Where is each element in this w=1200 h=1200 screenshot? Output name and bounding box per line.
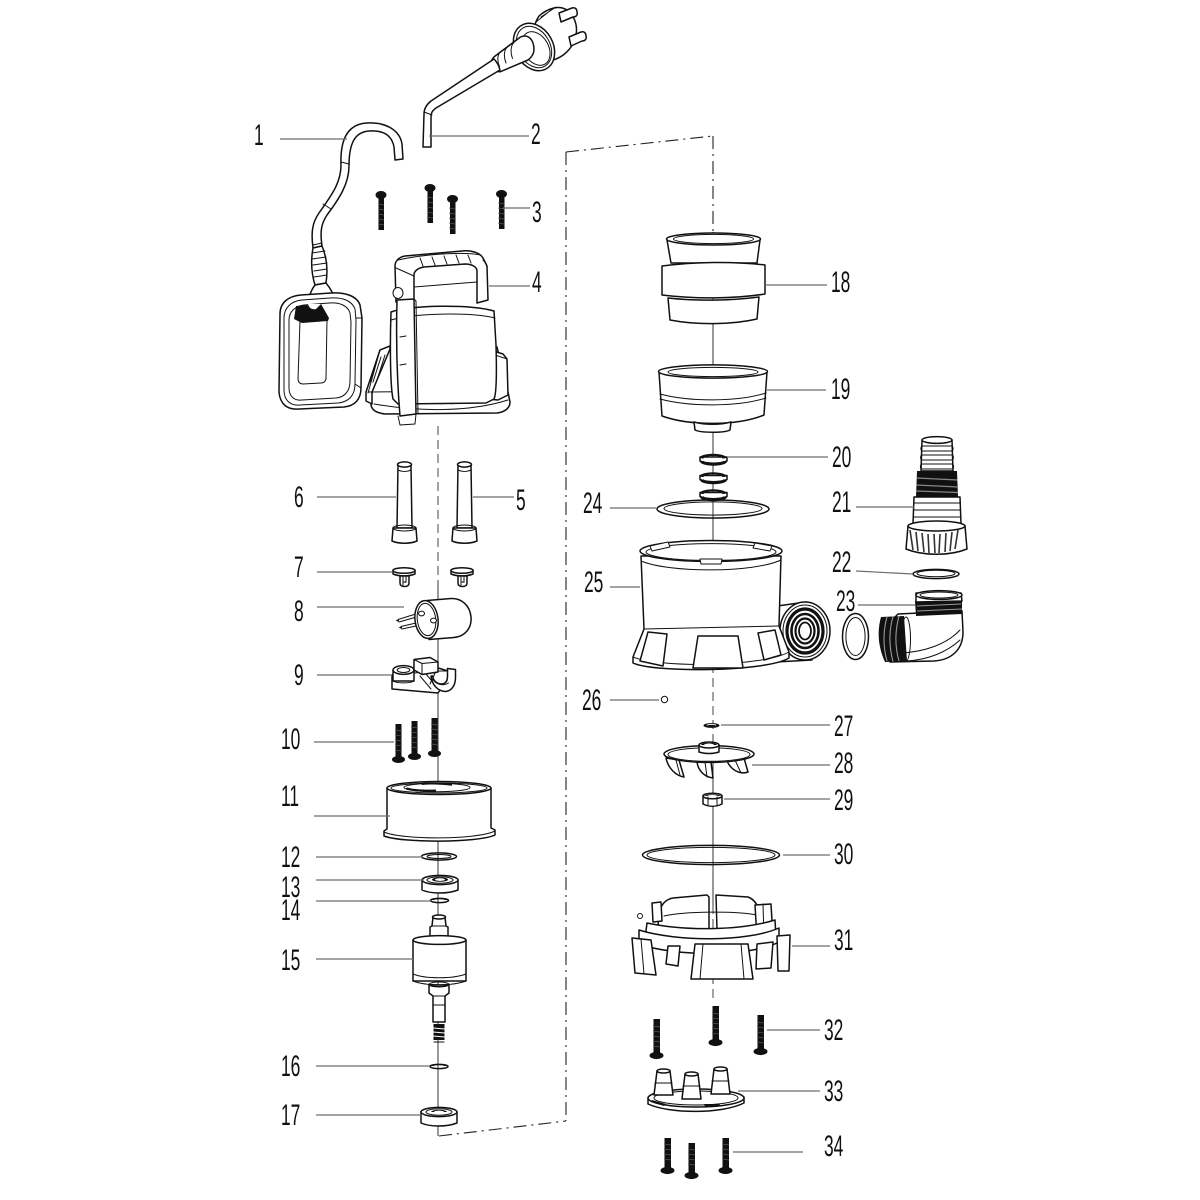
- svg-text:2: 2: [531, 118, 541, 151]
- svg-text:25: 25: [584, 566, 603, 599]
- svg-text:23: 23: [836, 585, 855, 618]
- svg-text:12: 12: [281, 841, 300, 874]
- svg-text:24: 24: [583, 487, 602, 520]
- svg-text:4: 4: [532, 266, 542, 299]
- svg-text:22: 22: [832, 546, 851, 579]
- svg-text:5: 5: [516, 484, 526, 517]
- svg-text:20: 20: [832, 441, 851, 474]
- svg-text:30: 30: [834, 838, 853, 871]
- svg-text:26: 26: [582, 684, 601, 717]
- svg-text:11: 11: [281, 780, 299, 813]
- svg-text:15: 15: [281, 944, 300, 977]
- svg-text:17: 17: [281, 1099, 300, 1132]
- svg-text:28: 28: [834, 747, 853, 780]
- svg-text:16: 16: [281, 1050, 300, 1083]
- svg-text:8: 8: [294, 595, 304, 628]
- svg-text:31: 31: [834, 924, 853, 957]
- svg-text:27: 27: [834, 710, 853, 743]
- svg-text:1: 1: [254, 119, 264, 152]
- svg-text:21: 21: [832, 486, 851, 519]
- svg-text:19: 19: [831, 373, 850, 406]
- svg-text:9: 9: [294, 659, 304, 692]
- svg-text:34: 34: [824, 1130, 843, 1163]
- svg-text:14: 14: [281, 894, 300, 927]
- svg-text:10: 10: [281, 723, 300, 756]
- svg-text:18: 18: [831, 266, 850, 299]
- svg-text:33: 33: [824, 1075, 843, 1108]
- svg-text:29: 29: [834, 784, 853, 817]
- svg-text:3: 3: [532, 196, 542, 229]
- svg-text:6: 6: [294, 481, 304, 514]
- svg-text:7: 7: [294, 551, 304, 584]
- svg-text:32: 32: [824, 1014, 843, 1047]
